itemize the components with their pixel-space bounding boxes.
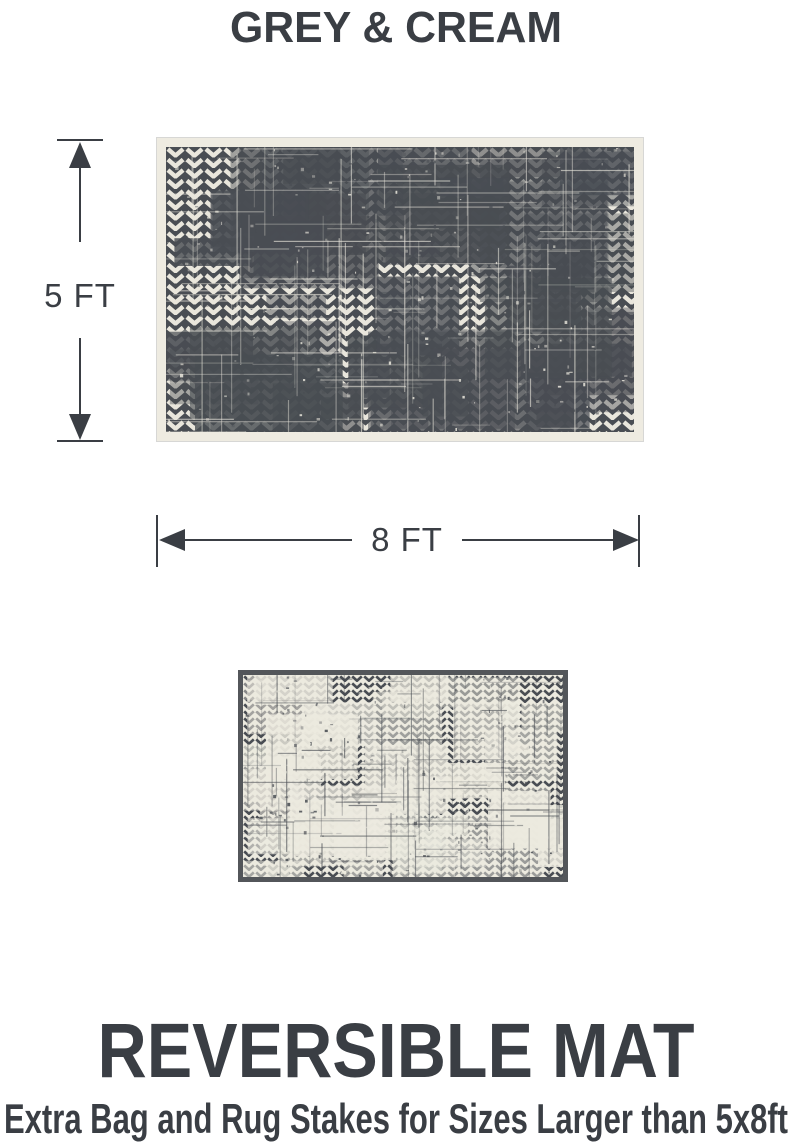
- color-variant-title: GREY & CREAM: [230, 3, 562, 52]
- footer-text-block: REVERSIBLE MAT Extra Bag and Rug Stakes …: [0, 1000, 793, 1145]
- width-dimension-shaft-left: [183, 539, 352, 541]
- height-dimension-label: 5 FT: [10, 277, 150, 315]
- rug-grey-side-image: [166, 147, 634, 432]
- height-dimension-shaft-upper: [79, 166, 81, 242]
- product-heading: REVERSIBLE MAT: [98, 1008, 695, 1094]
- arrow-up-icon: [69, 142, 91, 168]
- arrow-right-icon: [613, 529, 639, 551]
- arrow-left-icon: [159, 529, 185, 551]
- height-dimension-shaft-lower: [79, 338, 81, 416]
- rug-cream-side-image: [243, 675, 563, 877]
- product-infographic: GREY & CREAM 5 FT 8 FT REVERSIBLE MAT Ex…: [0, 0, 793, 1145]
- width-dimension-left-cap: [156, 515, 158, 567]
- height-dimension-top-cap: [57, 139, 103, 141]
- width-dimension-shaft-right: [462, 539, 615, 541]
- width-dimension-right-cap: [638, 515, 640, 567]
- rug-grey-side: [157, 138, 643, 441]
- rug-cream-side: [238, 670, 568, 882]
- height-dimension-bottom-cap: [57, 440, 103, 442]
- arrow-down-icon: [69, 414, 91, 440]
- color-variant-title-block: GREY & CREAM: [0, 0, 793, 60]
- product-note: Extra Bag and Rug Stakes for Sizes Large…: [4, 1095, 788, 1142]
- width-dimension-label: 8 FT: [352, 521, 462, 559]
